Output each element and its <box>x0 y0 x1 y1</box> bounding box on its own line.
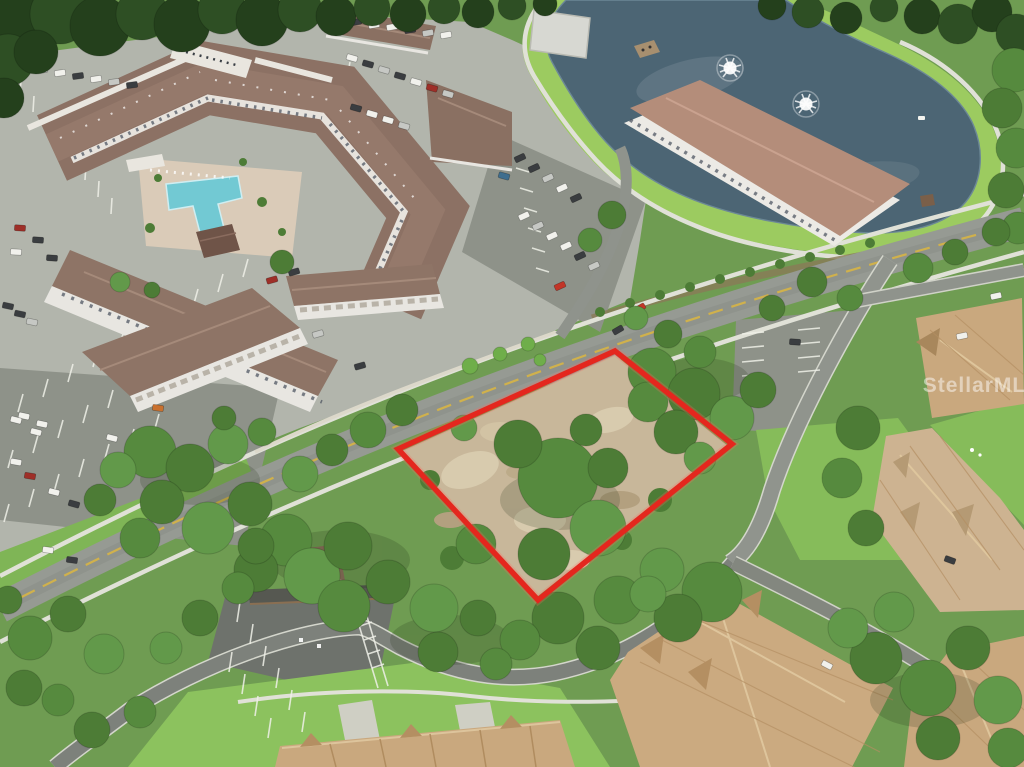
aerial-photo: StellarMLS <box>0 0 1024 767</box>
pergola <box>920 194 935 207</box>
handicap-symbol <box>317 644 321 648</box>
small-white-building <box>530 10 590 58</box>
small-boat <box>918 116 925 120</box>
townhome-roof <box>916 298 1024 418</box>
aerial-photo-canvas: StellarMLS <box>0 0 1024 767</box>
watermark: StellarMLS <box>923 374 1024 397</box>
handicap-symbol <box>299 638 303 642</box>
